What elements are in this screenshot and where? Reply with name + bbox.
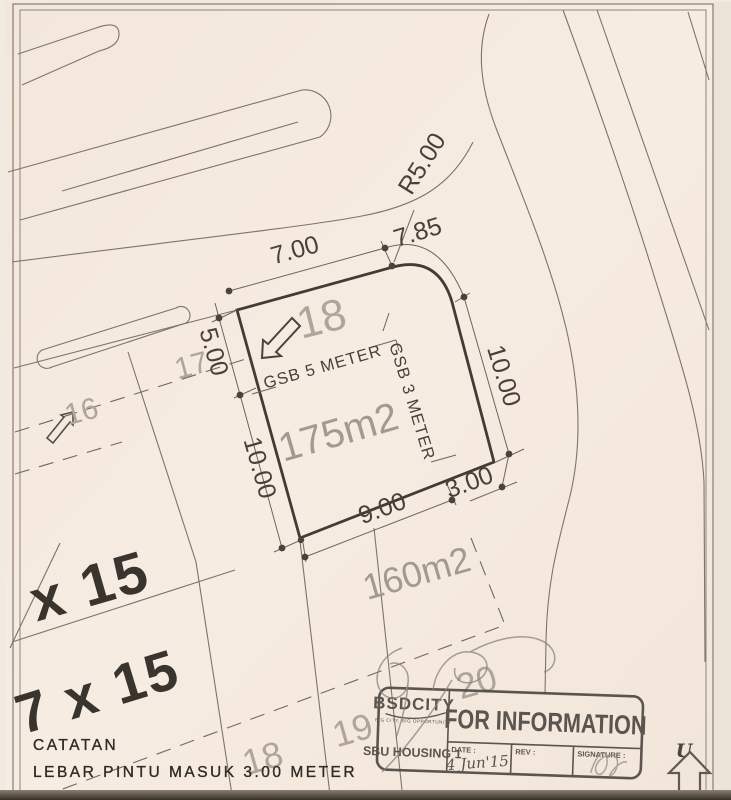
photo-bottom-edge [0, 790, 731, 800]
site-plan-scan: 7.00 7.85 R5.00 5.00 10.00 10.00 9.00 3.… [0, 0, 731, 800]
note-title: CATATAN [33, 737, 118, 754]
paper-right-shadow [714, 2, 731, 794]
note-body: LEBAR PINTU MASUK 3.00 METER [33, 764, 357, 781]
site-plan-drawing: 7.00 7.85 R5.00 5.00 10.00 10.00 9.00 3.… [0, 0, 731, 800]
stamp-rev-label: REV : [515, 747, 535, 757]
